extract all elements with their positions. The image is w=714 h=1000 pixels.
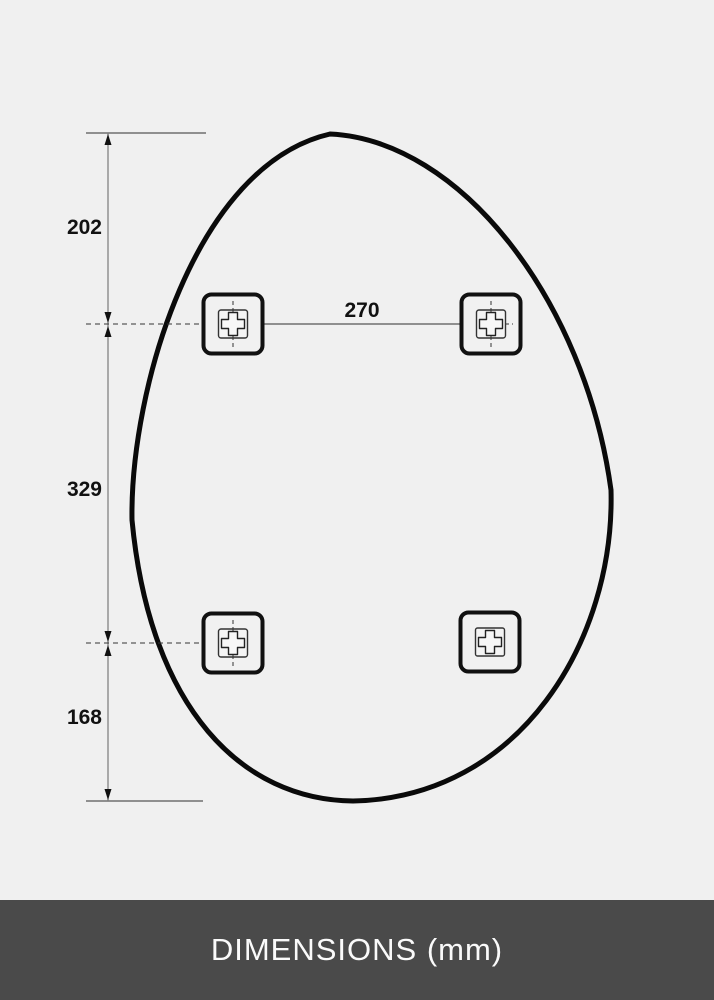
vertical-dim-label-middle: 329 [67,478,102,501]
vertical-dim-label-bottom: 168 [67,706,102,729]
mounting-bracket-bottom-right [461,613,520,672]
arrow-down-bottom [105,789,112,800]
horizontal-dim-label: 270 [344,299,379,322]
dimension-diagram-page: 202 329 168 270 [0,0,714,1000]
mirror-outline [132,134,611,801]
arrow-down-row2 [105,631,112,642]
mounting-bracket-bottom-left [204,614,263,673]
mounting-bracket-top-right [462,295,521,354]
vertical-dim-label-top: 202 [67,216,102,239]
footer-bar: DIMENSIONS (mm) [0,900,714,1000]
arrow-down-row1 [105,312,112,323]
arrow-up-top [105,134,112,145]
mounting-bracket-top-left [204,295,263,354]
footer-label: DIMENSIONS (mm) [211,932,503,968]
mirror-dimension-drawing: 202 329 168 270 [0,0,714,900]
arrow-up-row1 [105,326,112,337]
arrow-up-row2 [105,645,112,656]
